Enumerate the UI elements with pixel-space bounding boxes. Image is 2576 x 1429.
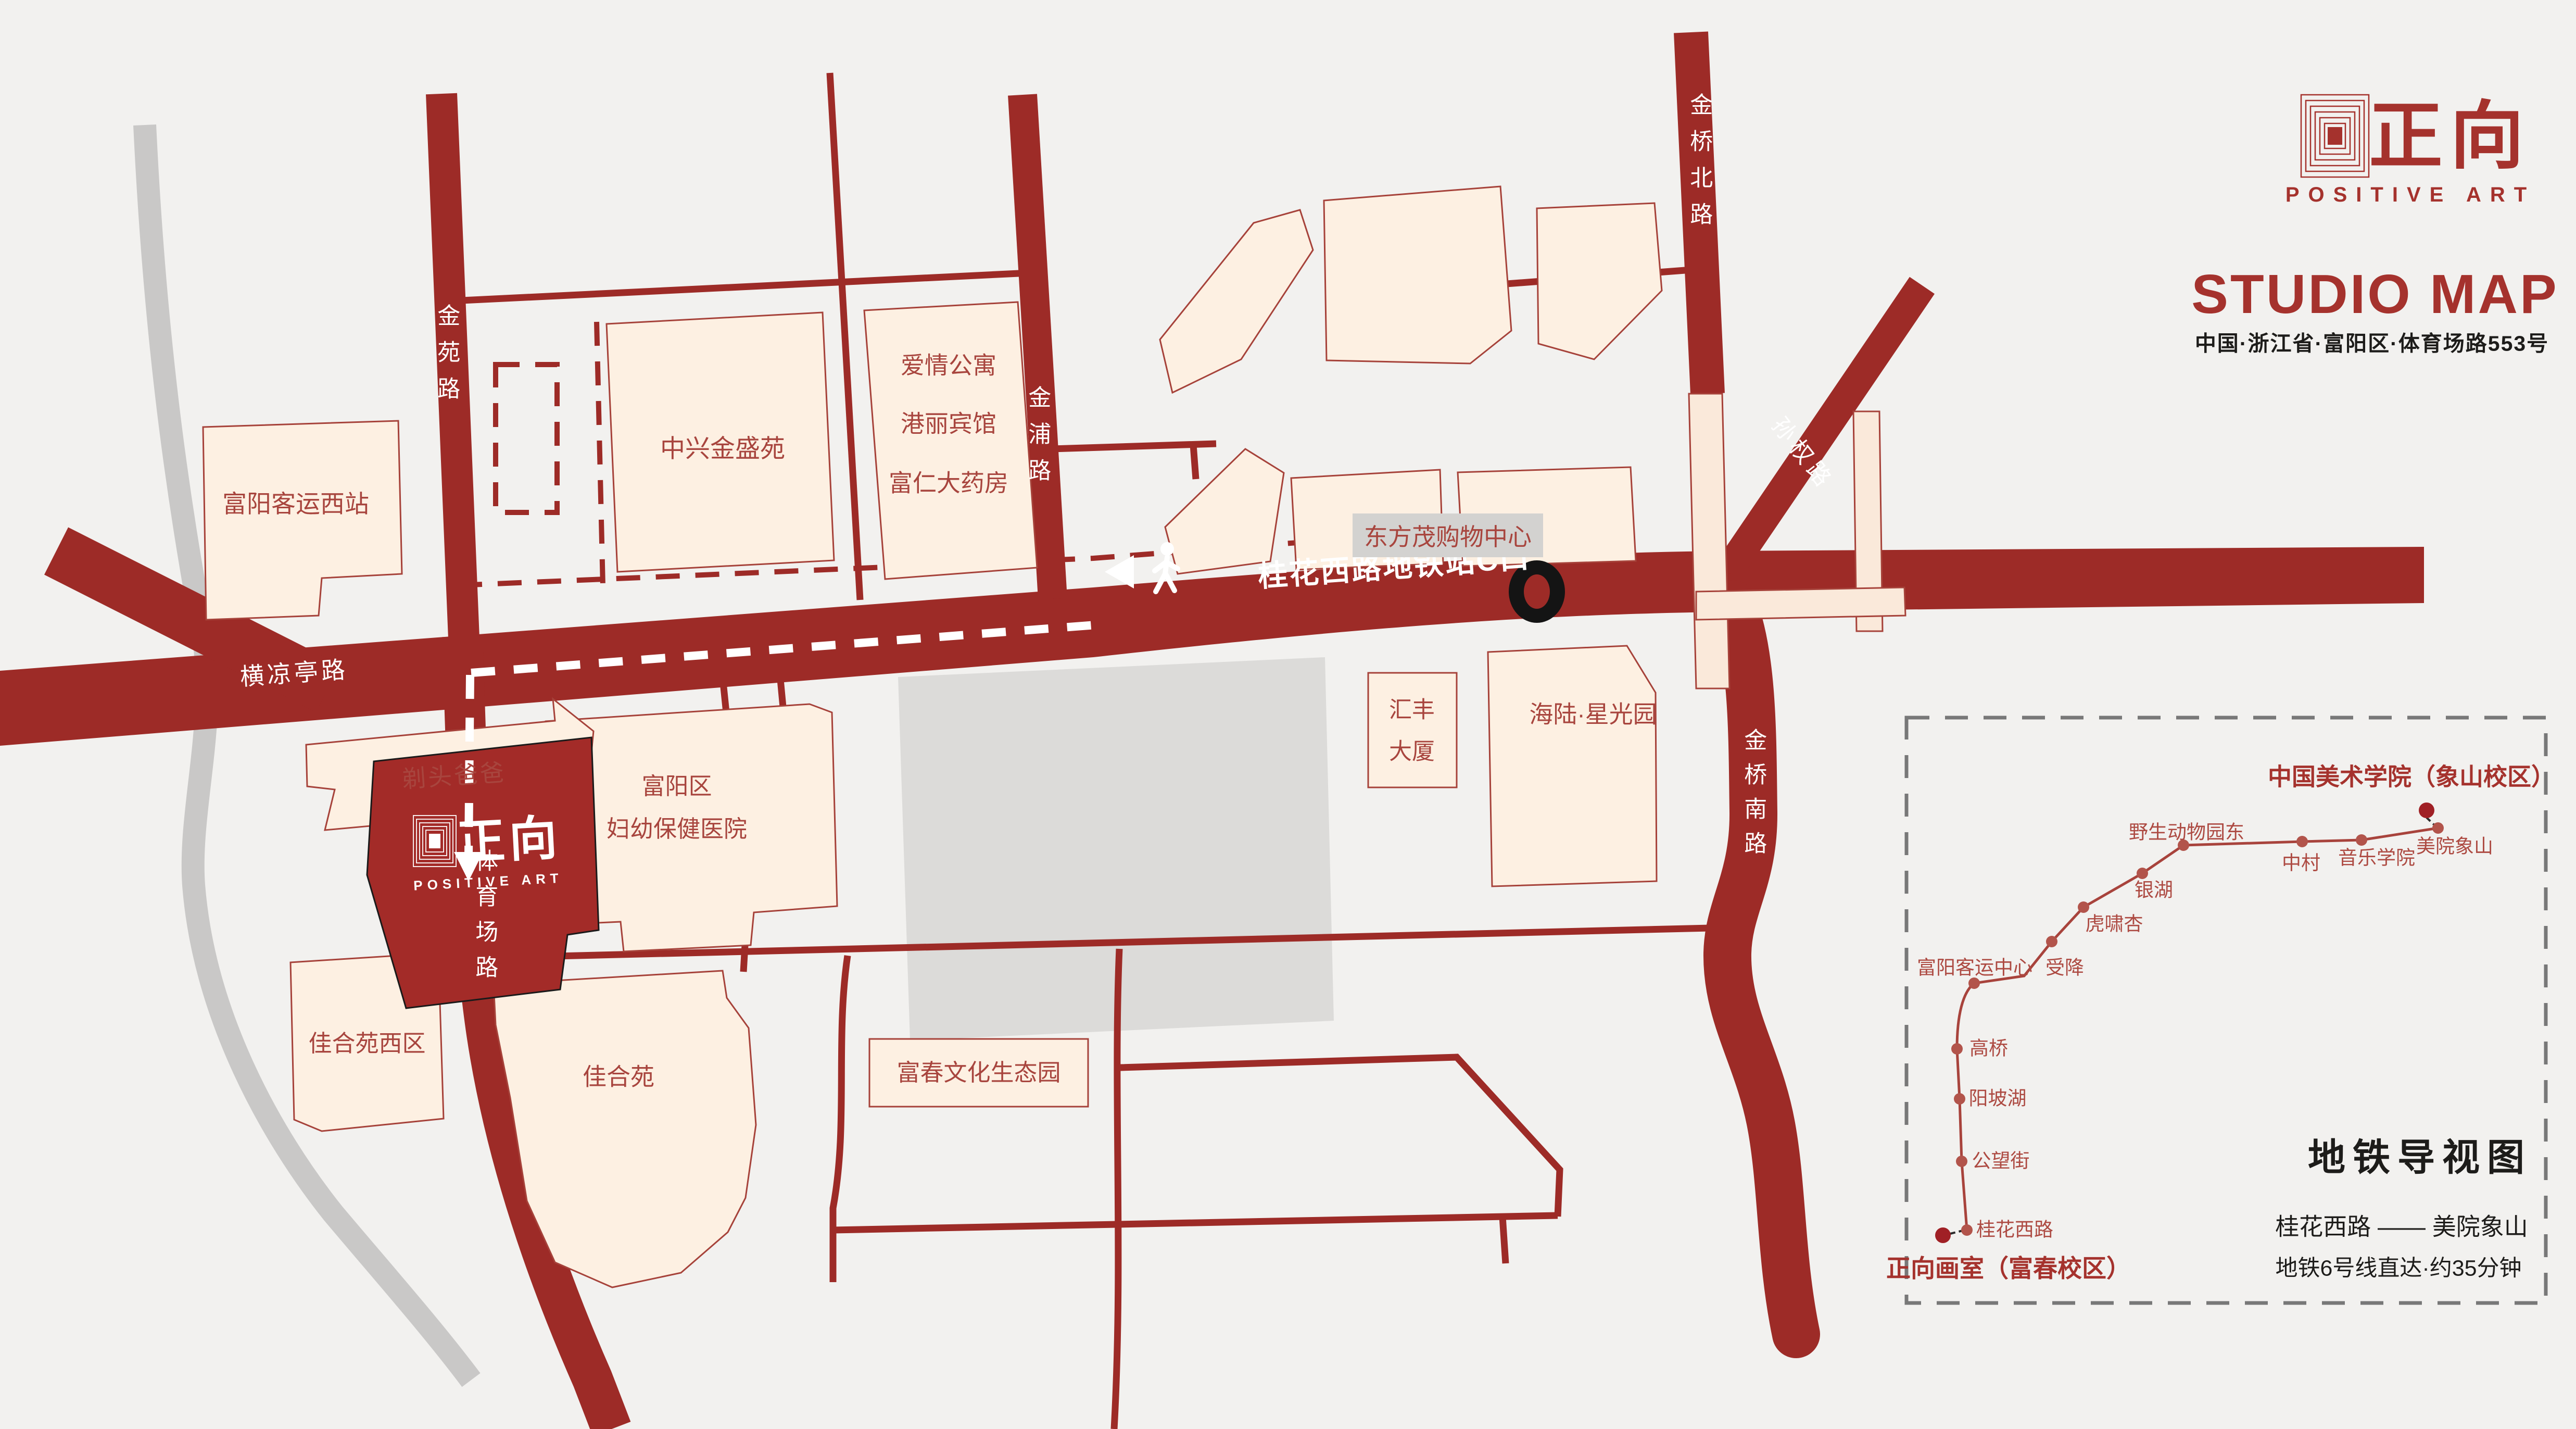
- station-dot: [1954, 1093, 1965, 1105]
- label-apartment-3: 富仁大药房: [889, 470, 1008, 497]
- dongfangmao-building-1: [1160, 210, 1313, 393]
- station-dot: [2356, 834, 2367, 846]
- label-jiaheyuan: 佳合苑: [583, 1063, 654, 1091]
- apartment-building: [864, 302, 1037, 579]
- label-hailu: 海陆·星光园: [1529, 701, 1657, 729]
- brand-logo-subtext: POSITIVE ART: [2285, 183, 2535, 207]
- metro-duration-note: 地铁6号线直达·约35分钟: [2275, 1256, 2521, 1281]
- road-label-tiyuchang: 体育场路: [471, 849, 498, 991]
- jinqiao-south-road: [1727, 604, 1796, 1334]
- station-dot: [1968, 977, 1980, 989]
- station-label-yinhu: 银湖: [2135, 880, 2173, 902]
- station-dot: [1956, 1156, 1967, 1167]
- station-label-shouxiang: 受降: [2045, 957, 2084, 980]
- station-dot: [2046, 936, 2057, 947]
- metro-terminus-label: 中国美术学院（象山校区）: [2268, 763, 2555, 791]
- label-huifeng-1: 汇丰: [1389, 697, 1435, 724]
- station-dot: [2432, 822, 2444, 834]
- hailu-building: [1488, 646, 1657, 886]
- metro-origin-dot: [1935, 1227, 1951, 1243]
- label-fuchun-park: 富春文化生态园: [896, 1059, 1060, 1086]
- studio-logo-icon: [413, 816, 456, 867]
- label-zhongxing: 中兴金盛苑: [660, 434, 785, 463]
- label-jiaheyuan-west: 佳合苑西区: [308, 1030, 425, 1057]
- page-title: STUDIO MAP: [2191, 263, 2558, 327]
- label-hospital-2: 妇幼保健医院: [607, 816, 747, 843]
- road-label-jinpu: 金浦路: [1024, 385, 1051, 495]
- dongfangmao-building-4: [1165, 449, 1284, 574]
- studio-address: 中国·浙江省·富阳区·体育场路553号: [2195, 331, 2549, 356]
- station-label-yangpohu: 阳坡湖: [1969, 1088, 2027, 1110]
- station-label-guihuaxilu: 桂花西路: [1976, 1219, 2053, 1242]
- label-apartment-1: 爱情公寓: [901, 352, 996, 380]
- station-label-yeshengdongwuyuandong: 野生动物园东: [2129, 822, 2244, 844]
- station-dot: [2137, 868, 2148, 879]
- label-west-bus-station: 富阳客运西站: [222, 490, 369, 518]
- dongfangmao-building-3: [1537, 203, 1662, 359]
- studio-map-canvas: 正向 POSITIVE ART STUDIO MAP 中国·浙江省·富阳区·体育…: [0, 0, 2576, 1429]
- label-huifeng-2: 大厦: [1389, 739, 1435, 766]
- metro-panel-title: 地铁导视图: [2308, 1137, 2532, 1180]
- metro-terminus-dot: [2419, 803, 2434, 818]
- road-label-jinqiao-south: 金桥南路: [1740, 728, 1766, 866]
- metro-origin-label: 正向画室（富春校区）: [1886, 1255, 2131, 1283]
- station-label-yinyuexueyuan: 音乐学院: [2338, 847, 2415, 870]
- huifeng-building: [1368, 673, 1457, 787]
- studio-logo-text: 正向: [456, 810, 562, 871]
- station-label-meiyuanxiangshan: 美院象山: [2416, 836, 2493, 858]
- station-dot: [1961, 1224, 1973, 1236]
- station-dot: [2296, 836, 2308, 847]
- station-dot: [1951, 1043, 1963, 1055]
- station-label-gaoqiao: 高桥: [1969, 1038, 2008, 1060]
- sunquan-road: [1727, 285, 1922, 572]
- west-bus-station-building: [203, 421, 402, 620]
- station-label-zhongcun: 中村: [2282, 853, 2320, 875]
- station-label-huxiaoxing: 虎啸杏: [2086, 913, 2143, 936]
- station-label-gongwangjie: 公望街: [1972, 1150, 2030, 1173]
- dongfangmao-building-2: [1324, 186, 1511, 363]
- label-dongfangmao: 东方茂购物中心: [1364, 518, 1532, 553]
- label-hospital-1: 富阳区: [641, 773, 712, 800]
- metro-route-summary: 桂花西路 —— 美院象山: [2275, 1213, 2528, 1241]
- brand-logo-icon: [2301, 95, 2369, 177]
- label-dongfangmao-box: 东方茂购物中心: [1353, 513, 1543, 557]
- label-apartment-2: 港丽宾馆: [901, 410, 996, 438]
- station-dot: [2078, 901, 2089, 913]
- brand-logo-text: 正向: [2369, 94, 2531, 179]
- road-label-jinqiao-north: 金桥北路: [1686, 93, 1712, 239]
- left-arrow-icon: [1105, 555, 1134, 588]
- station-label-fuyangkeyunzhongxin: 富阳客运中心: [1917, 957, 2032, 980]
- map-graphic: [0, 0, 2576, 1429]
- road-label-jinyuan: 金苑路: [433, 304, 460, 413]
